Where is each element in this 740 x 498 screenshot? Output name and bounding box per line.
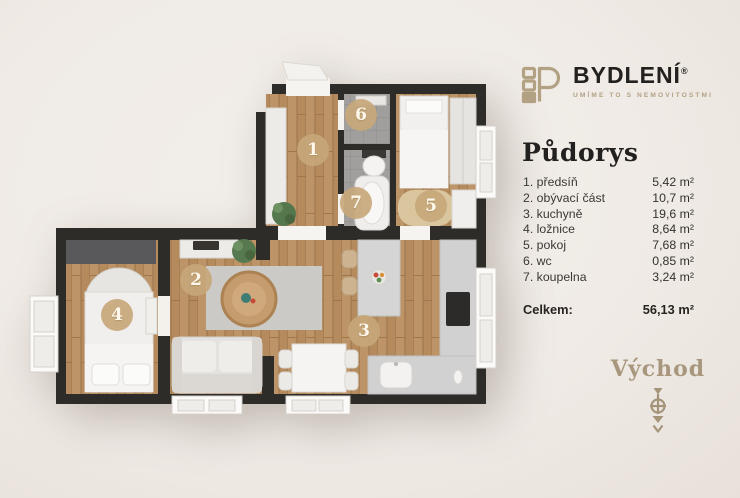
wardrobe-dark xyxy=(66,240,156,264)
plant xyxy=(232,239,256,263)
hall-plant xyxy=(272,202,296,226)
single-bed xyxy=(400,96,448,188)
legend-row: 3. kuchyně 19,6 m² xyxy=(523,207,694,223)
room-label: 6. wc xyxy=(523,254,552,270)
room-area: 5,42 m² xyxy=(652,175,694,191)
room-label: 5. pokoj xyxy=(523,238,566,254)
legend-row: 4. ložnice 8,64 m² xyxy=(523,222,694,238)
orientation-block: Východ xyxy=(598,356,718,442)
round-rug xyxy=(222,272,276,326)
room-area: 10,7 m² xyxy=(652,191,694,207)
toilet xyxy=(362,150,386,176)
room-area: 19,6 m² xyxy=(652,207,694,223)
room-area: 0,85 m² xyxy=(652,254,694,270)
legend-row: 2. obývací část 10,7 m² xyxy=(523,191,694,207)
poster: 1 2 3 4 5 6 7 BYDLENÍ® UMÍME TO S NEMOVI… xyxy=(0,0,740,498)
room-badge-4: 4 xyxy=(101,299,133,331)
room-legend: 1. předsíň 5,42 m² 2. obývací část 10,7 … xyxy=(523,175,694,286)
registered-mark: ® xyxy=(681,66,688,76)
room-badge-6: 6 xyxy=(345,99,377,131)
page-title: Půdorys xyxy=(522,138,638,167)
legend-row: 6. wc 0,85 m² xyxy=(523,254,694,270)
tv xyxy=(193,241,219,250)
room-area: 7,68 m² xyxy=(652,238,694,254)
room-label: 3. kuchyně xyxy=(523,207,582,223)
sofa xyxy=(172,337,262,393)
room-label: 7. koupelna xyxy=(523,270,587,286)
brand-logo-icon xyxy=(519,64,563,106)
total-row: Celkem: 56,13 m² xyxy=(523,302,694,317)
room-label: 1. předsíň xyxy=(523,175,578,191)
room5-desk xyxy=(452,190,476,228)
legend-row: 1. předsíň 5,42 m² xyxy=(523,175,694,191)
brand-block: BYDLENÍ® UMÍME TO S NEMOVITOSTMI xyxy=(519,64,713,106)
room-badge-3: 3 xyxy=(348,315,380,347)
room-label: 2. obývací část xyxy=(523,191,605,207)
orientation-label: Východ xyxy=(598,356,718,382)
bedroom-door-opening xyxy=(158,296,170,336)
legend-row: 7. koupelna 3,24 m² xyxy=(523,270,694,286)
room-label: 4. ložnice xyxy=(523,222,575,238)
room-badge-1: 1 xyxy=(297,134,329,166)
total-label: Celkem: xyxy=(523,302,573,317)
room-area: 8,64 m² xyxy=(652,222,694,238)
room-badge-2: 2 xyxy=(180,264,212,296)
room-badge-5: 5 xyxy=(415,190,447,222)
total-value: 56,13 m² xyxy=(643,302,694,317)
bedroom-door-leaf xyxy=(146,298,157,334)
room-badge-7: 7 xyxy=(340,187,372,219)
brand-name: BYDLENÍ® xyxy=(573,64,713,87)
legend-row: 5. pokoj 7,68 m² xyxy=(523,238,694,254)
brand-tagline: UMÍME TO S NEMOVITOSTMI xyxy=(573,92,713,99)
room-area: 3,24 m² xyxy=(652,270,694,286)
compass-icon xyxy=(643,385,673,437)
